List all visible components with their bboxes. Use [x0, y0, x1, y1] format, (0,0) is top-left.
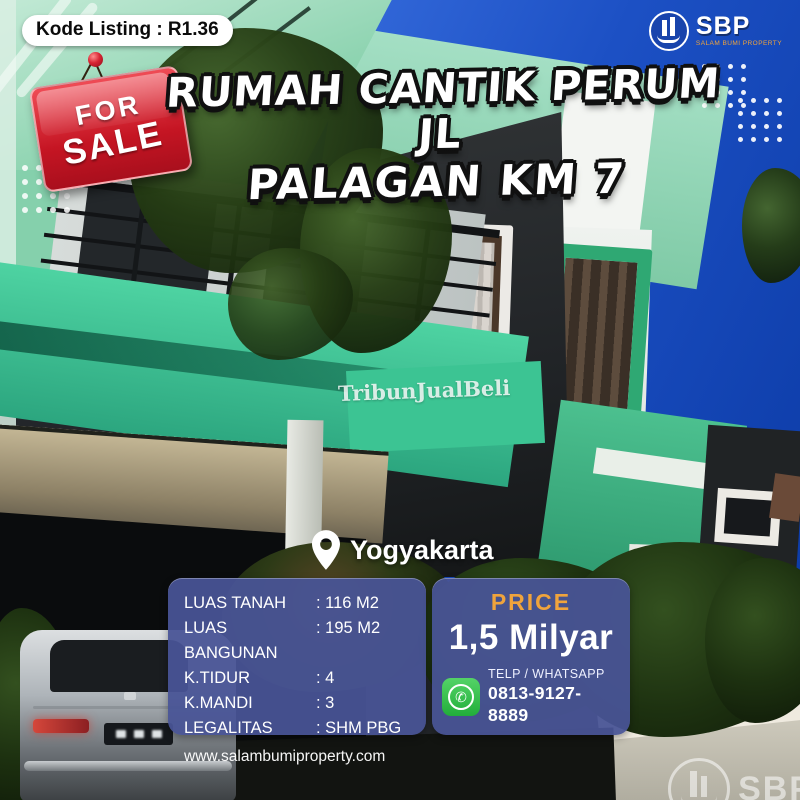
license-plate — [104, 723, 173, 745]
kode-listing-badge: Kode Listing : R1.36 — [22, 15, 233, 46]
phone-glyph: ✆ — [448, 684, 474, 710]
detail-label: LUAS BANGUNAN — [184, 616, 316, 666]
car-emblem — [124, 692, 136, 700]
dot-grid-decoration — [738, 98, 782, 142]
detail-value: : 195 M2 — [316, 616, 380, 666]
emblem-handshake-wave — [657, 35, 680, 43]
phone-number: 0813-9127-8889 — [488, 683, 620, 727]
emblem-building-bar — [690, 771, 697, 797]
emblem-building-bar — [662, 20, 667, 36]
location-name: Yogyakarta — [350, 535, 494, 566]
detail-row-luas-tanah: LUAS TANAH : 116 M2 — [184, 591, 410, 616]
plant-foliage — [742, 168, 800, 283]
detail-row-luas-bangunan: LUAS BANGUNAN : 195 M2 — [184, 616, 410, 666]
title-line1: RUMAH CANTIK PERUM JL — [138, 61, 745, 163]
brand-text: SBP SALAM BUMI PROPERTY — [696, 14, 782, 48]
property-details-panel: LUAS TANAH : 116 M2 LUAS BANGUNAN : 195 … — [168, 578, 426, 735]
emblem-building-bar — [670, 17, 675, 36]
price-label: PRICE — [432, 589, 630, 616]
detail-value: : 116 M2 — [316, 591, 379, 616]
detail-label: K.MANDI — [184, 691, 316, 716]
detail-label: LEGALITAS — [184, 716, 316, 741]
contact-label: TELP / WHATSAPP — [488, 667, 620, 683]
price-value: 1,5 Milyar — [432, 618, 630, 658]
sbp-emblem-icon — [668, 758, 730, 800]
detail-value: : 4 — [316, 666, 334, 691]
detail-row-kamar-tidur: K.TIDUR : 4 — [184, 666, 410, 691]
whatsapp-contact[interactable]: ✆ TELP / WHATSAPP 0813-9127-8889 — [432, 667, 630, 726]
detail-value: : 3 — [316, 691, 334, 716]
sbp-emblem-icon — [649, 11, 689, 51]
location-pin-icon — [312, 530, 340, 570]
flyer: TribunJualBeli Kode Listing : R1.36 SBP … — [0, 0, 800, 800]
info-panels: LUAS TANAH : 116 M2 LUAS BANGUNAN : 195 … — [168, 578, 630, 735]
location: Yogyakarta — [312, 530, 494, 570]
website-link[interactable]: www.salambumiproperty.com — [184, 748, 410, 766]
contact-text: TELP / WHATSAPP 0813-9127-8889 — [488, 667, 620, 726]
footer-brand-name: SBP — [738, 770, 800, 800]
balcony-parapet-right — [346, 361, 545, 453]
price-panel: PRICE 1,5 Milyar ✆ TELP / WHATSAPP 0813-… — [432, 578, 630, 735]
detail-label: K.TIDUR — [184, 666, 316, 691]
brand-name: SBP — [696, 14, 782, 39]
sign-pin-icon — [88, 52, 103, 67]
emblem-building-bar — [701, 776, 707, 797]
detail-row-legalitas: LEGALITAS : SHM PBG — [184, 716, 410, 741]
emblem-handshake-wave — [681, 796, 717, 800]
brand-logo: SBP SALAM BUMI PROPERTY — [649, 11, 782, 51]
detail-row-kamar-mandi: K.MANDI : 3 — [184, 691, 410, 716]
detail-label: LUAS TANAH — [184, 591, 316, 616]
detail-value: : SHM PBG — [316, 716, 401, 741]
footer-brand-watermark: SBP — [668, 758, 800, 800]
car-taillight — [33, 719, 89, 733]
listing-title: RUMAH CANTIK PERUM JL PALAGAN KM 7 — [135, 61, 746, 210]
neighbor-roof — [769, 473, 800, 522]
brand-tagline: SALAM BUMI PROPERTY — [696, 41, 782, 48]
whatsapp-icon: ✆ — [442, 678, 480, 716]
